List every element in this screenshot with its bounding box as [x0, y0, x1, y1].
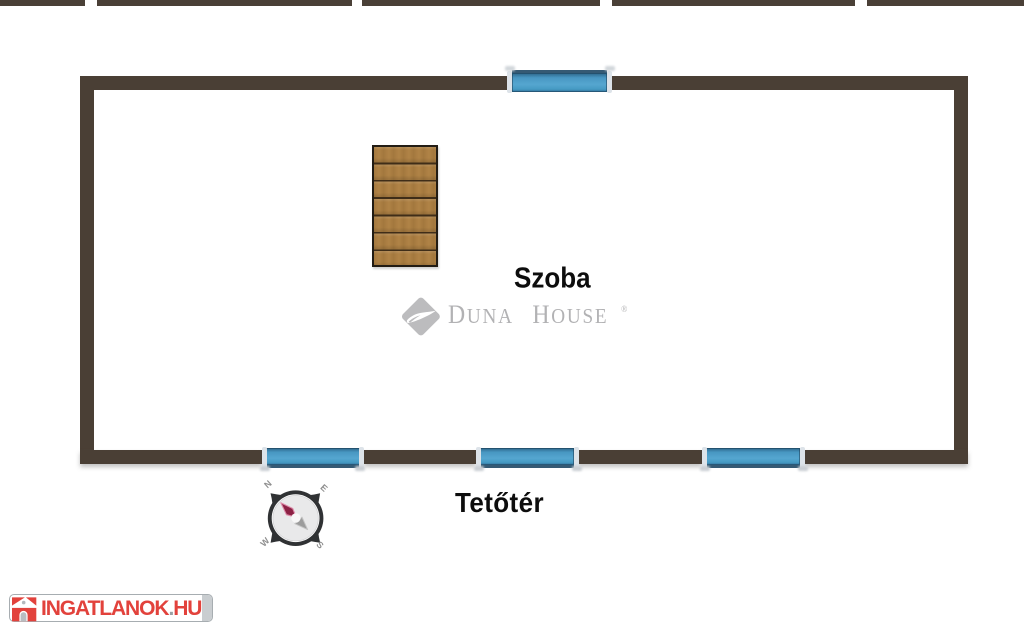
svg-text:N: N [262, 478, 274, 490]
svg-text:W: W [258, 535, 271, 548]
svg-text:E: E [318, 482, 329, 493]
